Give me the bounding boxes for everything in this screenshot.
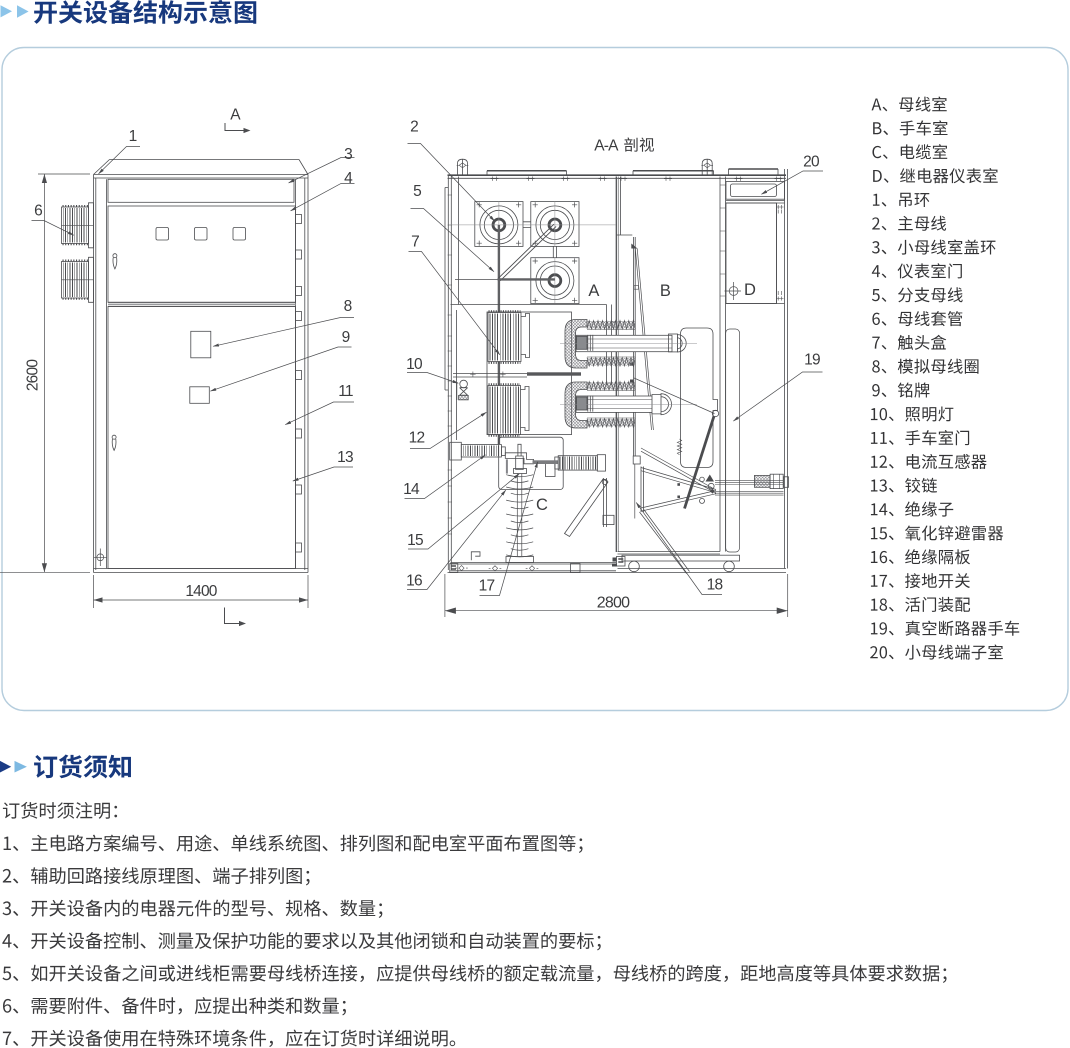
- svg-text:D: D: [744, 281, 756, 299]
- svg-text:A-A: A-A: [594, 138, 619, 155]
- svg-text:8: 8: [344, 298, 352, 315]
- svg-text:9: 9: [342, 329, 350, 346]
- svg-text:20: 20: [803, 154, 820, 171]
- svg-text:A: A: [588, 282, 599, 300]
- svg-text:4: 4: [344, 170, 353, 187]
- svg-text:18: 18: [707, 577, 723, 594]
- svg-text:1: 1: [129, 128, 137, 145]
- svg-text:12: 12: [409, 430, 425, 447]
- svg-text:C: C: [536, 496, 548, 514]
- svg-text:2: 2: [410, 119, 418, 136]
- svg-text:19: 19: [804, 352, 820, 369]
- svg-text:B: B: [660, 282, 671, 300]
- svg-text:2800: 2800: [597, 595, 630, 612]
- svg-text:1400: 1400: [185, 583, 217, 600]
- svg-text:14: 14: [403, 481, 420, 498]
- svg-text:3: 3: [344, 146, 352, 163]
- svg-text:11: 11: [338, 383, 353, 400]
- svg-text:7: 7: [411, 234, 419, 251]
- svg-text:13: 13: [337, 449, 353, 466]
- svg-text:2600: 2600: [25, 359, 42, 391]
- svg-text:15: 15: [407, 532, 423, 549]
- svg-text:17: 17: [479, 578, 495, 595]
- svg-text:6: 6: [34, 203, 42, 220]
- svg-text:A: A: [230, 107, 241, 124]
- svg-text:5: 5: [413, 183, 421, 200]
- svg-text:16: 16: [406, 573, 422, 590]
- svg-text:10: 10: [406, 356, 423, 373]
